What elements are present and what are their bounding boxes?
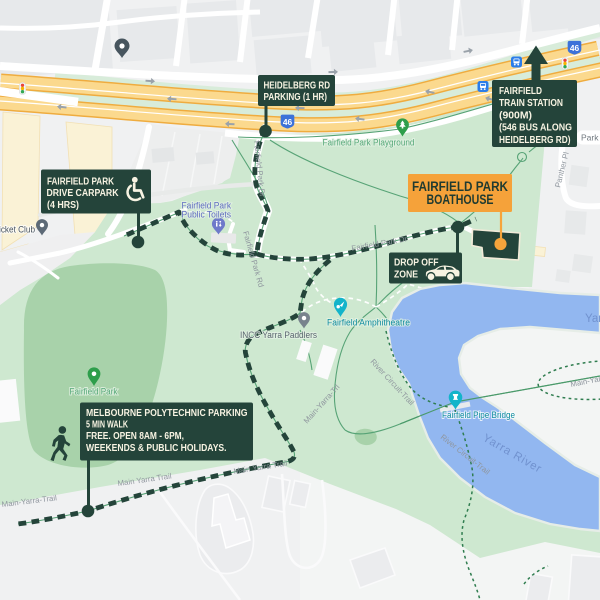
svg-text:INCC Yarra Paddlers: INCC Yarra Paddlers: [240, 330, 318, 340]
svg-text:Fairfield Park: Fairfield Park: [70, 387, 118, 397]
svg-text:MELBOURNE POLYTECHNIC PARKING: MELBOURNE POLYTECHNIC PARKING: [86, 408, 248, 419]
svg-text:5 MIN WALK: 5 MIN WALK: [86, 420, 128, 431]
svg-text:HEIDELBERG RD): HEIDELBERG RD): [499, 134, 571, 146]
svg-text:Fairfield Amphitheatre: Fairfield Amphitheatre: [327, 317, 410, 327]
svg-text:PARKING (1 HR): PARKING (1 HR): [264, 91, 328, 103]
svg-text:Park C: Park C: [581, 133, 600, 143]
svg-text:Yar: Yar: [585, 313, 600, 325]
svg-text:ZONE: ZONE: [394, 269, 418, 280]
svg-text:46: 46: [570, 43, 580, 53]
svg-text:DROP OFF: DROP OFF: [394, 258, 439, 269]
svg-text:DRIVE CARPARK: DRIVE CARPARK: [47, 188, 119, 199]
svg-text:FAIRFIELD: FAIRFIELD: [499, 85, 542, 97]
svg-text:WEEKENDS & PUBLIC HOLIDAYS.: WEEKENDS & PUBLIC HOLIDAYS.: [86, 443, 227, 454]
svg-text:FAIRFIELD PARK: FAIRFIELD PARK: [47, 176, 114, 187]
svg-text:icket Club: icket Club: [0, 225, 35, 235]
svg-text:Fairfield Pipe Bridge: Fairfield Pipe Bridge: [442, 410, 515, 420]
svg-text:(900M): (900M): [499, 109, 532, 121]
svg-text:46: 46: [283, 117, 293, 127]
svg-text:(546 BUS ALONG: (546 BUS ALONG: [499, 122, 572, 134]
svg-text:Public Toilets: Public Toilets: [182, 209, 232, 219]
svg-text:TRAIN STATION: TRAIN STATION: [499, 97, 563, 109]
svg-text:BOATHOUSE: BOATHOUSE: [427, 192, 494, 208]
svg-text:HEIDELBERG RD: HEIDELBERG RD: [264, 80, 331, 92]
svg-text:(4 HRS): (4 HRS): [47, 200, 79, 211]
svg-text:Fairfield Park Playground: Fairfield Park Playground: [323, 137, 415, 147]
svg-text:FREE. OPEN 8AM - 6PM,: FREE. OPEN 8AM - 6PM,: [86, 431, 184, 442]
